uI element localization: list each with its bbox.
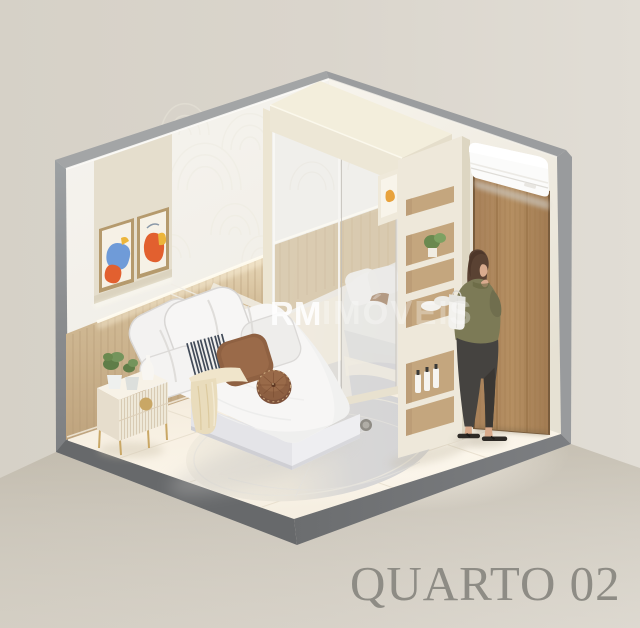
svg-text:QUARTO 02: QUARTO 02 — [350, 556, 621, 611]
svg-text:RM: RM — [270, 295, 321, 332]
svg-text:IMÓVEIS: IMÓVEIS — [322, 294, 474, 331]
